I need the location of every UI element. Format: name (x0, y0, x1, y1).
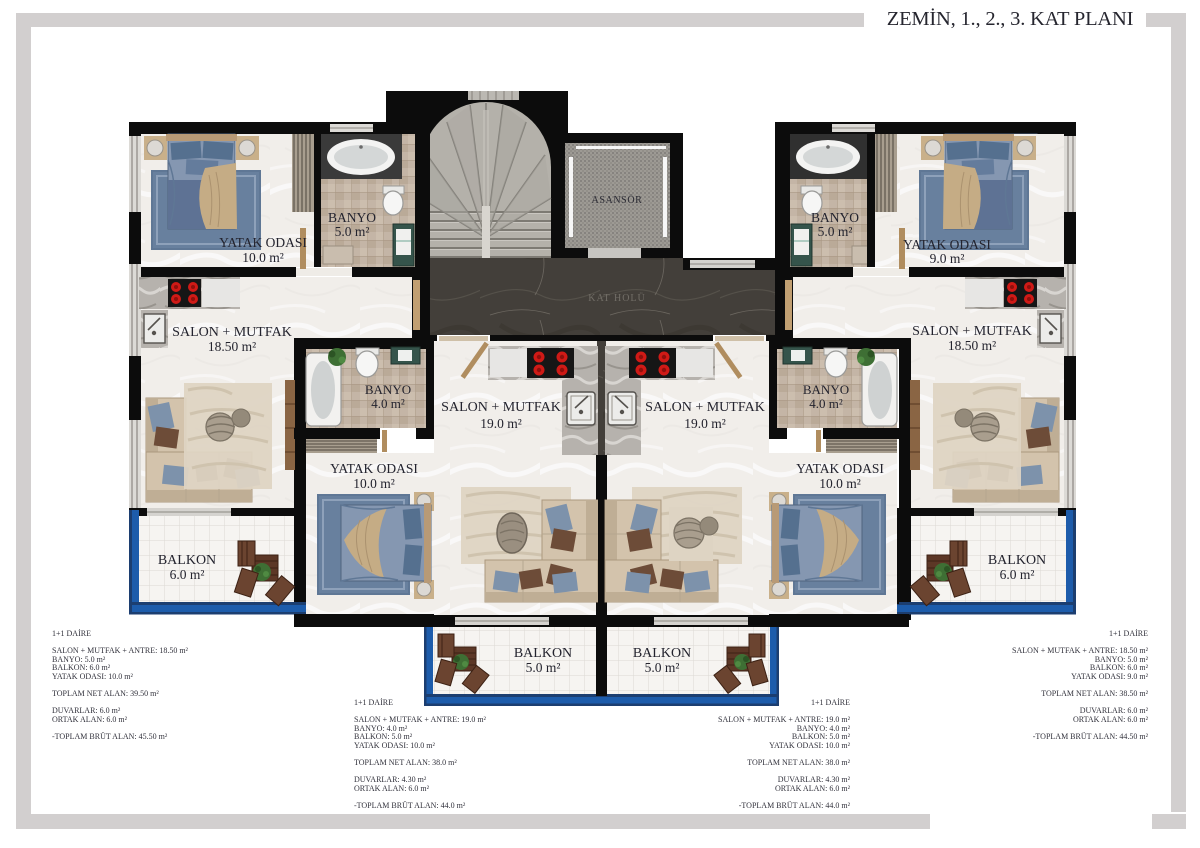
svg-text:5.0 m²: 5.0 m² (526, 660, 561, 675)
svg-text:-TOPLAM BRÜT ALAN: 44.0 m²: -TOPLAM BRÜT ALAN: 44.0 m² (354, 801, 466, 810)
svg-text:-TOPLAM BRÜT ALAN: 45.50 m²: -TOPLAM BRÜT ALAN: 45.50 m² (52, 732, 168, 741)
svg-text:1+1 DAİRE: 1+1 DAİRE (354, 698, 393, 707)
svg-text:SALON + MUTFAK: SALON + MUTFAK (441, 400, 561, 415)
svg-text:ORTAK ALAN: 6.0 m²: ORTAK ALAN: 6.0 m² (354, 784, 430, 793)
svg-text:19.0 m²: 19.0 m² (684, 416, 726, 431)
svg-text:YATAK ODASI: 10.0 m²: YATAK ODASI: 10.0 m² (354, 741, 435, 750)
svg-text:1+1 DAİRE: 1+1 DAİRE (1109, 629, 1148, 638)
svg-text:BALKON: BALKON (158, 553, 216, 568)
svg-text:ZEMİN, 1., 2., 3. KAT PLANI: ZEMİN, 1., 2., 3. KAT PLANI (887, 7, 1134, 30)
svg-text:TOPLAM NET ALAN: 39.50 m²: TOPLAM NET ALAN: 39.50 m² (52, 689, 159, 698)
svg-text:BALKON: 6.0 m²: BALKON: 6.0 m² (52, 663, 111, 672)
svg-text:TOPLAM NET ALAN: 38.0 m²: TOPLAM NET ALAN: 38.0 m² (747, 758, 850, 767)
svg-text:SALON + MUTFAK: SALON + MUTFAK (645, 400, 765, 415)
svg-text:DUVARLAR: 4.30 m²: DUVARLAR: 4.30 m² (778, 775, 851, 784)
svg-text:5.0 m²: 5.0 m² (335, 224, 370, 239)
svg-text:18.50 m²: 18.50 m² (208, 339, 256, 354)
svg-text:ASANSÖR: ASANSÖR (592, 194, 643, 206)
svg-text:-TOPLAM BRÜT ALAN: 44.50 m²: -TOPLAM BRÜT ALAN: 44.50 m² (1033, 732, 1149, 741)
svg-text:1+1 DAİRE: 1+1 DAİRE (811, 698, 850, 707)
svg-text:BALKON: 5.0 m²: BALKON: 5.0 m² (792, 732, 851, 741)
svg-text:SALON + MUTFAK + ANTRE: 18.50: SALON + MUTFAK + ANTRE: 18.50 m² (1012, 646, 1149, 655)
svg-text:10.0 m²: 10.0 m² (353, 476, 395, 491)
svg-text:YATAK ODASI: 9.0 m²: YATAK ODASI: 9.0 m² (1071, 672, 1148, 681)
svg-text:ORTAK ALAN: 6.0 m²: ORTAK ALAN: 6.0 m² (52, 715, 128, 724)
svg-text:-TOPLAM BRÜT ALAN: 44.0 m²: -TOPLAM BRÜT ALAN: 44.0 m² (739, 801, 851, 810)
svg-text:SALON + MUTFAK: SALON + MUTFAK (912, 324, 1032, 339)
svg-text:4.0 m²: 4.0 m² (371, 396, 405, 411)
svg-text:SALON + MUTFAK + ANTRE: 19.0 m: SALON + MUTFAK + ANTRE: 19.0 m² (354, 715, 487, 724)
svg-text:4.0 m²: 4.0 m² (809, 396, 843, 411)
svg-text:DUVARLAR: 6.0 m²: DUVARLAR: 6.0 m² (52, 706, 121, 715)
svg-text:YATAK ODASI: YATAK ODASI (796, 461, 884, 476)
svg-text:BANYO: BANYO (365, 382, 411, 397)
svg-text:18.50 m²: 18.50 m² (948, 338, 996, 353)
svg-text:ORTAK ALAN: 6.0 m²: ORTAK ALAN: 6.0 m² (1073, 715, 1149, 724)
svg-text:1+1 DAİRE: 1+1 DAİRE (52, 629, 91, 638)
svg-text:BANYO: BANYO (811, 210, 859, 225)
svg-text:TOPLAM NET ALAN: 38.50 m²: TOPLAM NET ALAN: 38.50 m² (1041, 689, 1148, 698)
svg-text:DUVARLAR: 6.0 m²: DUVARLAR: 6.0 m² (1080, 706, 1149, 715)
svg-text:YATAK ODASI: 10.0 m²: YATAK ODASI: 10.0 m² (769, 741, 850, 750)
svg-text:5.0 m²: 5.0 m² (818, 224, 853, 239)
svg-text:BALKON: BALKON (988, 553, 1046, 568)
svg-text:YATAK ODASI: YATAK ODASI (330, 461, 418, 476)
svg-text:6.0 m²: 6.0 m² (1000, 567, 1035, 582)
svg-text:9.0 m²: 9.0 m² (930, 251, 965, 266)
svg-text:BALKON: BALKON (514, 646, 572, 661)
svg-text:BANYO: BANYO (803, 382, 849, 397)
svg-text:6.0 m²: 6.0 m² (170, 567, 205, 582)
svg-text:YATAK ODASI: 10.0 m²: YATAK ODASI: 10.0 m² (52, 672, 133, 681)
svg-text:KAT HOLÜ: KAT HOLÜ (588, 292, 646, 304)
svg-text:DUVARLAR: 4.30 m²: DUVARLAR: 4.30 m² (354, 775, 427, 784)
svg-text:TOPLAM NET ALAN: 38.0 m²: TOPLAM NET ALAN: 38.0 m² (354, 758, 457, 767)
svg-text:YATAK ODASI: YATAK ODASI (219, 235, 307, 250)
svg-text:YATAK ODASI: YATAK ODASI (903, 237, 991, 252)
svg-text:19.0 m²: 19.0 m² (480, 416, 522, 431)
svg-text:SALON + MUTFAK + ANTRE: 19.0 m: SALON + MUTFAK + ANTRE: 19.0 m² (718, 715, 851, 724)
svg-text:BALKON: 6.0 m²: BALKON: 6.0 m² (1090, 663, 1149, 672)
svg-text:BALKON: 5.0 m²: BALKON: 5.0 m² (354, 732, 413, 741)
svg-text:BALKON: BALKON (633, 646, 691, 661)
svg-text:SALON + MUTFAK + ANTRE: 18.50: SALON + MUTFAK + ANTRE: 18.50 m² (52, 646, 189, 655)
svg-text:SALON + MUTFAK: SALON + MUTFAK (172, 325, 292, 340)
svg-text:10.0 m²: 10.0 m² (819, 476, 861, 491)
svg-text:5.0 m²: 5.0 m² (645, 660, 680, 675)
svg-text:ORTAK ALAN: 6.0 m²: ORTAK ALAN: 6.0 m² (775, 784, 851, 793)
svg-text:10.0 m²: 10.0 m² (242, 250, 284, 265)
svg-text:BANYO: BANYO (328, 210, 376, 225)
